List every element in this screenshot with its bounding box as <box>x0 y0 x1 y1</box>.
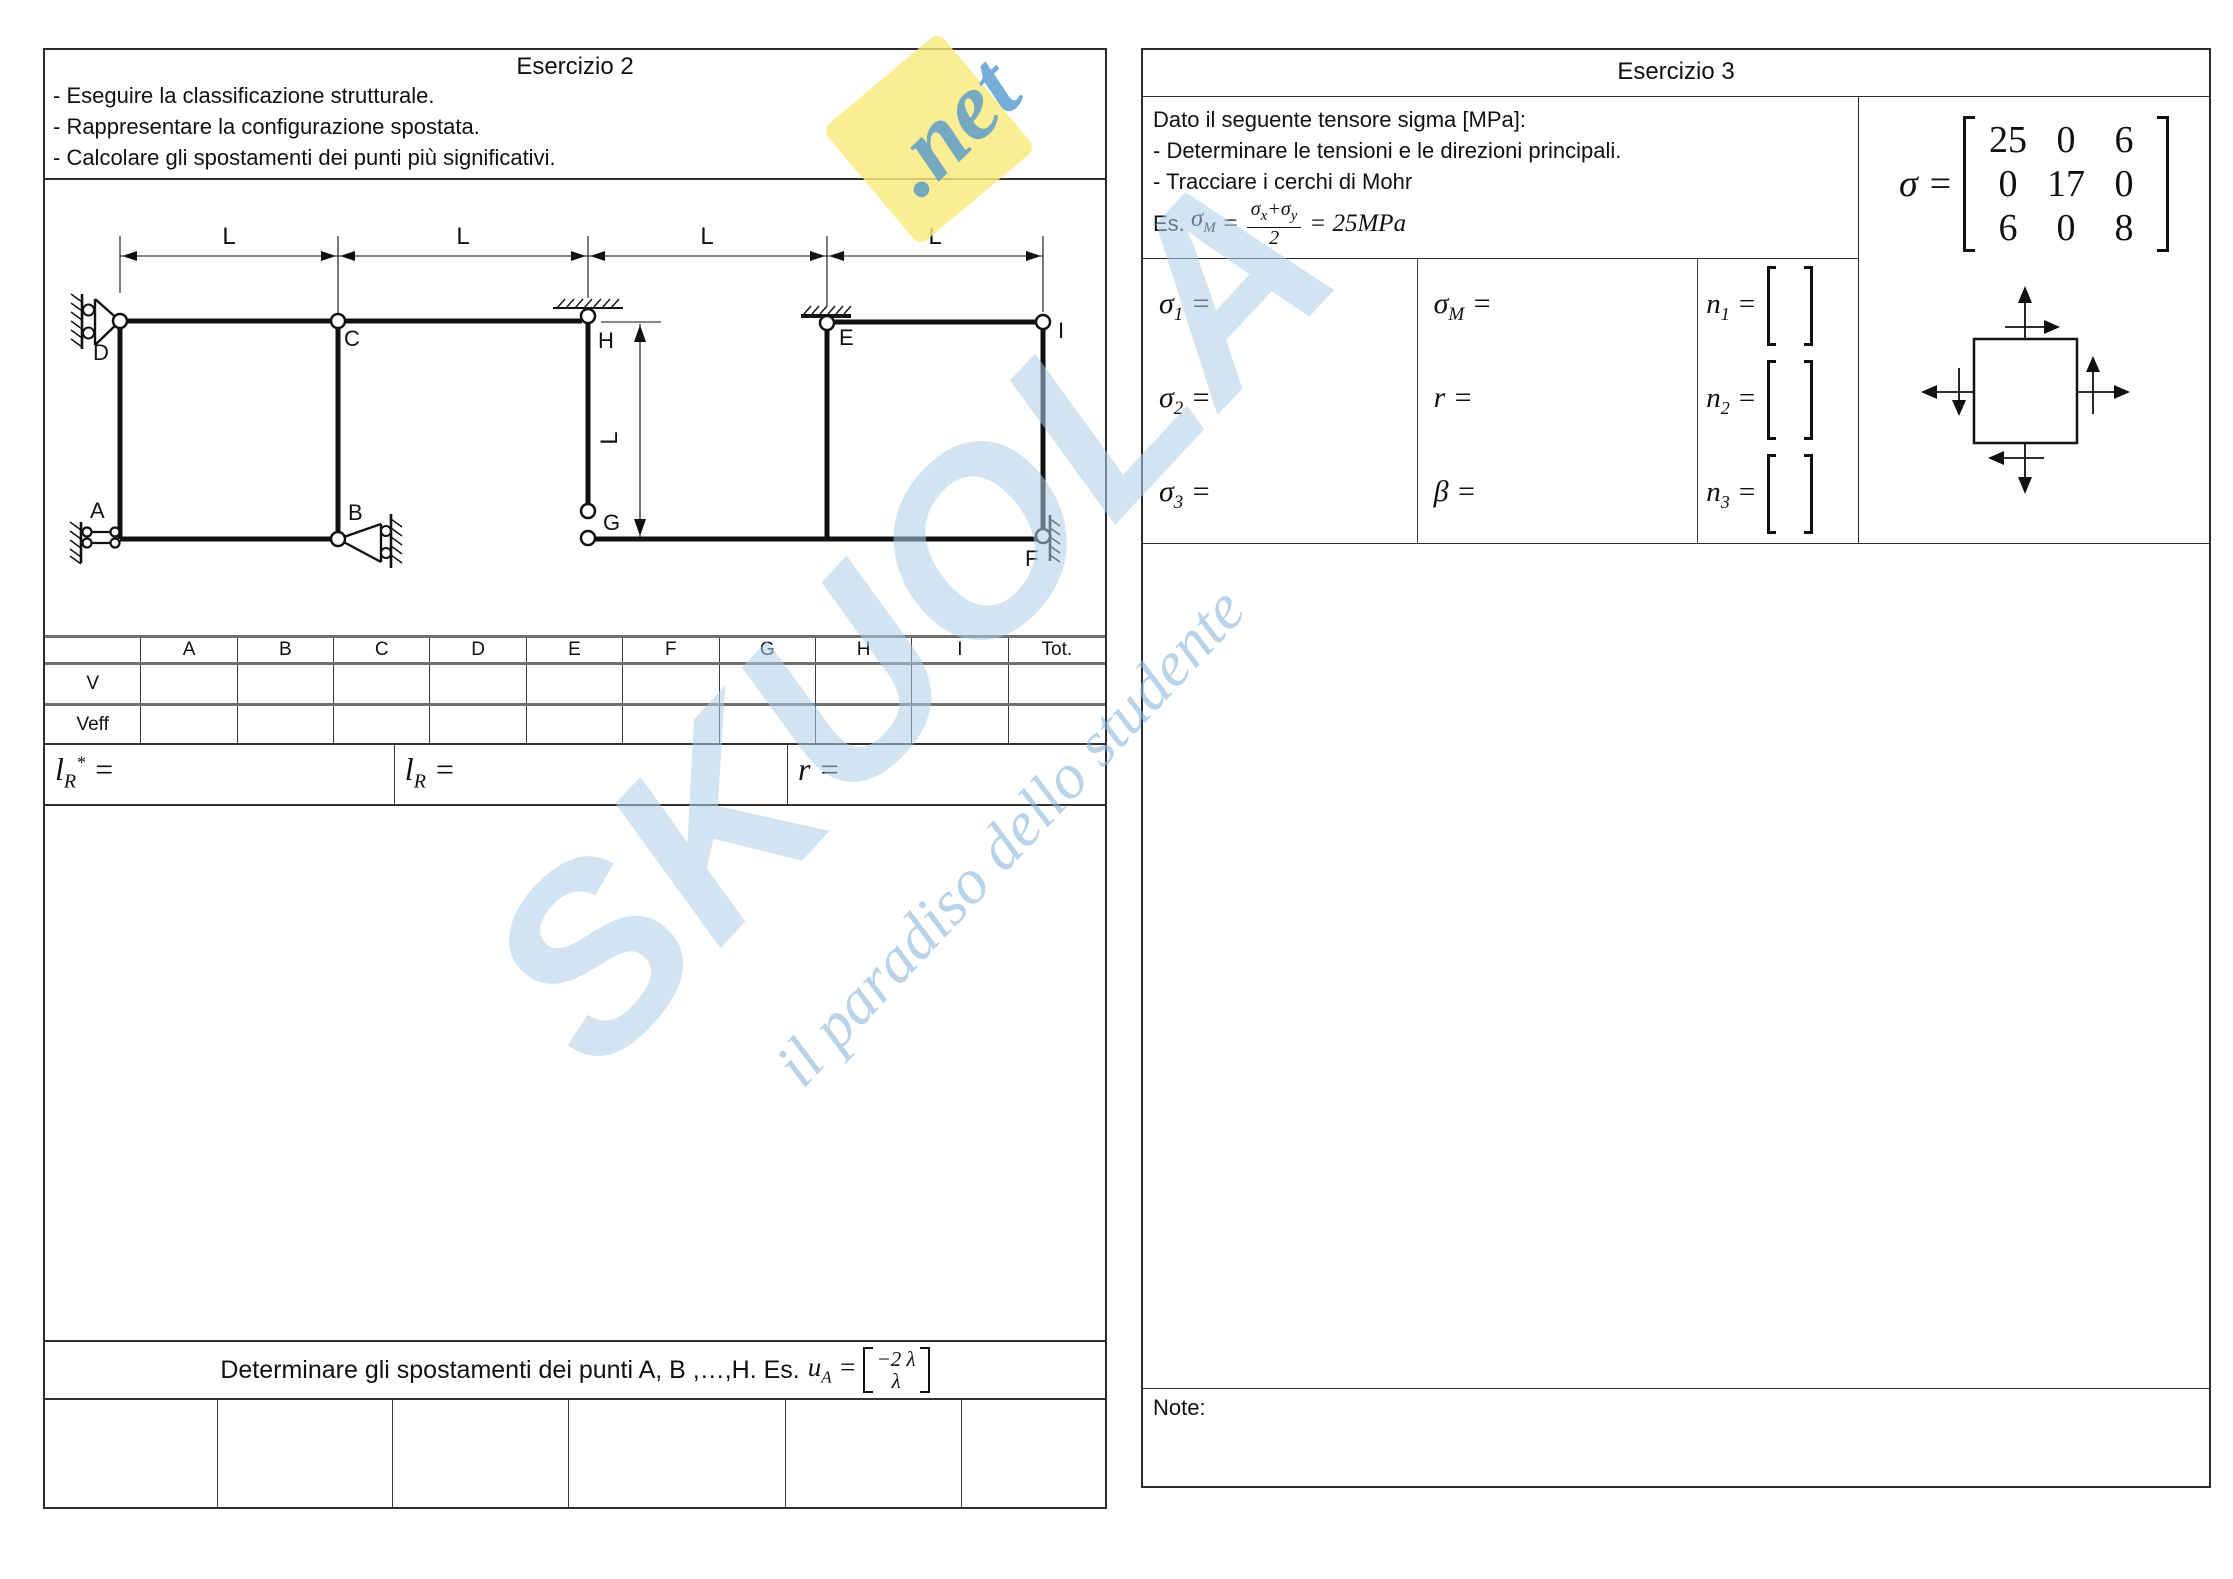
formula-row: lR* = lR = r = <box>45 745 1105 806</box>
table-row-Veff: Veff <box>45 706 1105 745</box>
esercizio2-instructions: - Eseguire la classificazione struttural… <box>53 80 556 173</box>
esercizio2-panel: Esercizio 2 - Eseguire la classificazion… <box>43 48 1107 1509</box>
answer-boxes-row <box>45 1400 1105 1507</box>
support-E-ceiling <box>801 306 851 316</box>
col-header: C <box>334 638 430 662</box>
dim-label: L <box>700 223 713 250</box>
displacement-instruction: Determinare gli spostamenti dei punti A,… <box>45 1340 1105 1400</box>
matrix-bracket-left <box>1963 116 1975 252</box>
matrix-cell: 25 <box>1979 118 2037 162</box>
empty-cell <box>334 706 430 743</box>
node-label-G: G <box>603 510 620 535</box>
structure-diagram: L L L L L A B C D E F G H I <box>45 178 1105 635</box>
answer-box <box>786 1400 962 1507</box>
empty-cell <box>816 706 912 743</box>
dim-label: L <box>928 223 941 250</box>
empty-cell <box>430 665 526 703</box>
empty-cell <box>430 706 526 743</box>
col-header: B <box>238 638 334 662</box>
empty-cell <box>1009 706 1105 743</box>
col-header: Tot. <box>1009 638 1105 662</box>
sigma-tensor-matrix: σ = 25 0 6 0 17 0 6 0 8 <box>1859 116 2209 252</box>
n3-field: n3 = <box>1698 447 1858 541</box>
example-formula: Es. σM = σx+σy 2 = 25MPa <box>1153 199 1858 248</box>
esercizio3-panel: Esercizio 3 Dato il seguente tensore sig… <box>1141 48 2211 1488</box>
bracket-left <box>863 1347 873 1393</box>
table-header-row: A B C D E F G H I Tot. <box>45 635 1105 665</box>
sigma2-field: σ2 = <box>1143 353 1417 447</box>
empty-cell <box>623 706 719 743</box>
col-header: A <box>141 638 237 662</box>
sigma3-field: σ3 = <box>1143 447 1417 541</box>
sigma-column: σ1 = σ2 = σ3 = <box>1143 259 1418 543</box>
support-A-double-link <box>70 522 120 564</box>
empty-cell <box>912 706 1008 743</box>
stress-element-diagram <box>1902 276 2147 506</box>
matrix-cell: 0 <box>1979 162 2037 206</box>
vertical-dimension <box>601 322 661 537</box>
dim-label-vertical: L <box>596 431 623 444</box>
classification-table: A B C D E F G H I Tot. V Veff <box>45 635 1105 806</box>
diagram-labels: L L L L L A B C D E F G H I <box>90 223 1064 571</box>
empty-cell <box>1009 665 1105 703</box>
lr-star-field: lR* = <box>45 745 395 804</box>
n2-field: n2 = <box>1698 353 1858 447</box>
lr-field: lR = <box>395 745 788 804</box>
empty-cell <box>912 665 1008 703</box>
node-label-C: C <box>344 326 360 351</box>
note-label: Note: <box>1153 1395 1206 1420</box>
matrix-cell: 0 <box>2037 206 2095 250</box>
vector-top: −2 λ <box>877 1348 916 1370</box>
bracket-right <box>920 1347 930 1393</box>
instruction-line: - Tracciare i cerchi di Mohr <box>1153 166 1858 197</box>
col-header: F <box>623 638 719 662</box>
answer-box <box>45 1400 218 1507</box>
esercizio3-left-block: Dato il seguente tensore sigma [MPa]: - … <box>1143 96 1859 543</box>
esercizio2-title: Esercizio 2 <box>45 53 1105 81</box>
col-header: D <box>430 638 526 662</box>
stress-element-square <box>1974 339 2077 443</box>
beta-field: β = <box>1418 447 1698 541</box>
empty-cell <box>527 706 623 743</box>
table-row-V: V <box>45 665 1105 706</box>
matrix-cell: 8 <box>2095 206 2153 250</box>
answer-box <box>962 1400 1105 1507</box>
empty-vector-brackets <box>1767 360 1813 440</box>
support-F-wall <box>1050 515 1060 562</box>
empty-vector-brackets <box>1767 454 1813 534</box>
row-label: Veff <box>45 706 141 743</box>
node-label-A: A <box>90 498 105 523</box>
node-label-F: F <box>1025 546 1038 571</box>
answer-box <box>218 1400 393 1507</box>
matrix-cell: 6 <box>1979 206 2037 250</box>
support-H-ceiling <box>553 299 623 308</box>
node-label-B: B <box>348 500 363 525</box>
empty-cell <box>720 665 816 703</box>
worksheet-page: Esercizio 2 - Eseguire la classificazion… <box>0 0 2233 1579</box>
empty-cell <box>141 665 237 703</box>
uA-symbol: uA = <box>808 1352 857 1387</box>
node-label-D: D <box>93 340 109 365</box>
esercizio3-title: Esercizio 3 <box>1143 50 2209 97</box>
hinges <box>113 309 1050 546</box>
uA-vector: −2 λ λ <box>863 1347 930 1393</box>
direction-column: n1 = n2 = n3 = <box>1698 259 1858 543</box>
matrix-cell: 0 <box>2095 162 2153 206</box>
instruction-line: - Rappresentare la configurazione sposta… <box>53 111 556 142</box>
n1-field: n1 = <box>1698 259 1858 353</box>
col-header: G <box>720 638 816 662</box>
empty-cell <box>527 665 623 703</box>
col-header: H <box>816 638 912 662</box>
instruction-line: - Determinare le tensioni e le direzioni… <box>1153 135 1858 166</box>
matrix-cell: 6 <box>2095 118 2153 162</box>
col-header: I <box>912 638 1008 662</box>
esercizio3-instructions: Dato il seguente tensore sigma [MPa]: - … <box>1143 96 1858 259</box>
stress-arrows <box>1933 300 2118 480</box>
principal-stress-fields: σ1 = σ2 = σ3 = σM = r = β = n1 = n2 = n3… <box>1143 259 1858 543</box>
node-label-I: I <box>1058 318 1064 343</box>
instruction-line: - Eseguire la classificazione struttural… <box>53 80 556 111</box>
esercizio3-right-block: σ = 25 0 6 0 17 0 6 0 8 <box>1859 96 2209 543</box>
matrix-cell: 0 <box>2037 118 2095 162</box>
dim-label: L <box>222 223 235 250</box>
empty-cell <box>816 665 912 703</box>
matrix-cell: 17 <box>2037 162 2095 206</box>
instruction-line: Dato il seguente tensore sigma [MPa]: <box>1153 104 1858 135</box>
empty-cell <box>238 706 334 743</box>
instruction-line: - Calcolare gli spostamenti dei punti pi… <box>53 142 556 173</box>
sigma1-field: σ1 = <box>1143 259 1417 353</box>
answer-box <box>569 1400 786 1507</box>
sigmaM-field: σM = <box>1418 259 1698 353</box>
note-section: Note: <box>1143 1388 2209 1486</box>
node-label-H: H <box>598 328 614 353</box>
col-header: E <box>527 638 623 662</box>
empty-cell <box>334 665 430 703</box>
mohr-column: σM = r = β = <box>1418 259 1699 543</box>
instruction-text: Determinare gli spostamenti dei punti A,… <box>220 1356 799 1385</box>
empty-vector-brackets <box>1767 266 1813 346</box>
dim-label: L <box>456 223 469 250</box>
row-label: V <box>45 665 141 703</box>
esercizio3-content: Dato il seguente tensore sigma [MPa]: - … <box>1143 96 2209 544</box>
empty-cell <box>238 665 334 703</box>
empty-cell <box>623 665 719 703</box>
node-label-E: E <box>839 325 854 350</box>
answer-box <box>393 1400 569 1507</box>
empty-cell <box>720 706 816 743</box>
col-header <box>45 638 141 662</box>
matrix-bracket-right <box>2157 116 2169 252</box>
r-field: r = <box>1418 353 1698 447</box>
esercizio2-header: Esercizio 2 - Eseguire la classificazion… <box>45 50 1105 180</box>
r-field: r = <box>788 745 1105 804</box>
vector-bottom: λ <box>877 1370 916 1392</box>
empty-cell <box>141 706 237 743</box>
